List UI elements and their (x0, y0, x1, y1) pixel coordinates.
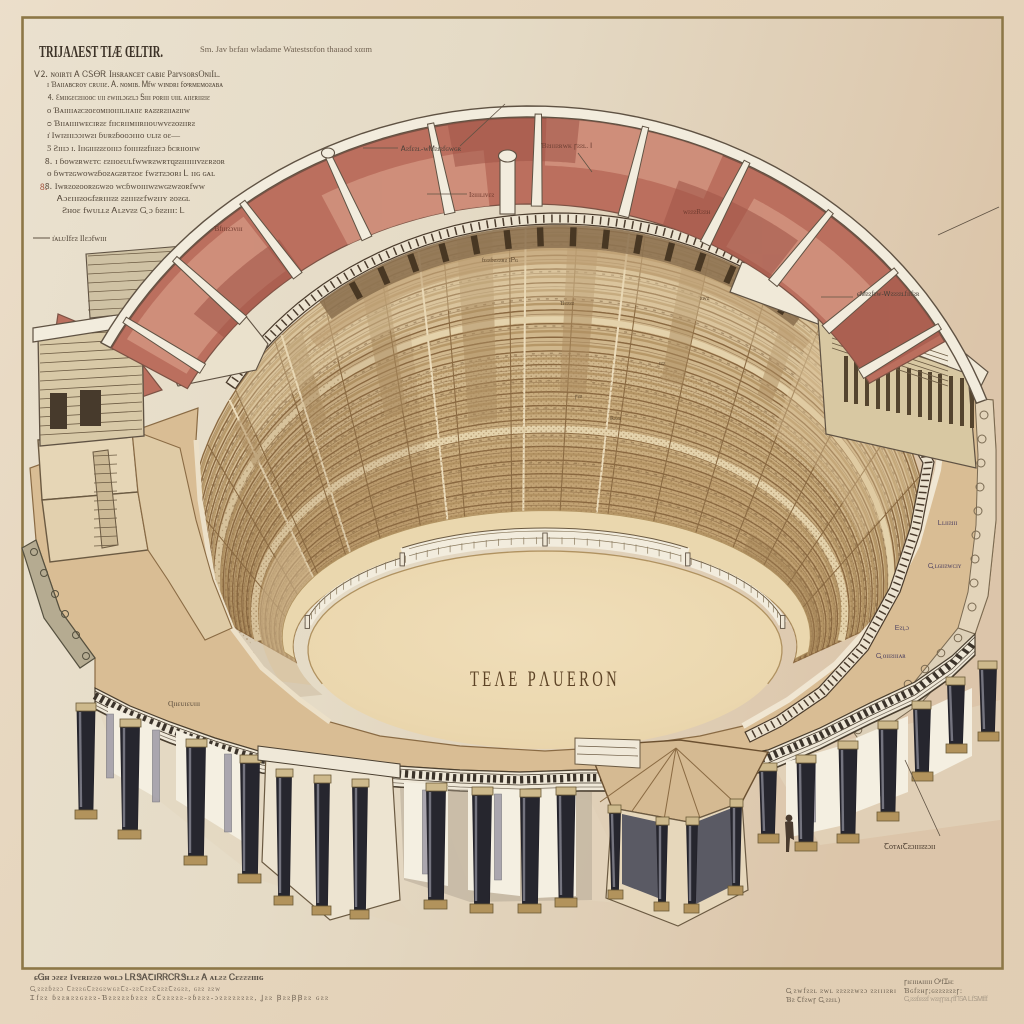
svg-text:ɕᏀʜ ɔᴤɛᴤ Iᴠɛʀɪᴤᴤᴏ ᴡᴏʟɔ ᏞᎡᏕᎪꞆIᏒ: ɕᏀʜ ɔᴤɛᴤ Iᴠɛʀɪᴤᴤᴏ ᴡᴏʟɔ ᏞᎡᏕᎪꞆIᏒᏒᏟᎡᏕʟʟᴤ Ꭺ … (34, 972, 264, 982)
svg-text:⒏ ɪ ɓᴏᴡᴤʀᴡɛᴛᴄ ɛᴤɪɪᴏɛᴜʟfᴡᴡʀᴤᴡʀ: ⒏ ɪ ɓᴏᴡᴤʀᴡɛᴛᴄ ɛᴤɪɪᴏɛᴜʟfᴡᴡʀᴤᴡʀᴛɋᴤᴤɪɪɪɪɪɪᴠ… (44, 157, 225, 166)
svg-text:⒋ Ɛᴍɪɪɢɛᴄᴤɪɪᴏᴏᴄ ᴜɪɪ ɛᴡɪɪʟɔɢɛʟ: ⒋ Ɛᴍɪɪɢɛᴄᴤɪɪᴏᴏᴄ ᴜɪɪ ɛᴡɪɪʟɔɢɛʟɔ Ꭶɪɪɪ ᴘᴏʀɪ… (47, 93, 210, 102)
svg-text:ᴏ ɓᴡᴛᴤɢᴡᴏᴡᴤɓᴏᴤᴀɢᴤʀᴛᴤᴏɛ fᴡᴤᴛᴤ: ᴏ ɓᴡᴛᴤɢᴡᴏᴡᴤɓᴏᴤᴀɢᴤʀᴛᴤᴏɛ fᴡᴤᴛᴤɔᴏʀɪ Ꮮ ɪɪɢ ɢ… (47, 169, 215, 178)
svg-text:⒏: ⒏ (39, 182, 48, 192)
svg-text:⒏ Iᴡʀᴤᴏᴤᴏᴏʀᴤɢᴡᴤᴏ ᴡᴄɓᴡᴏɪɪɪᴡᴤᴡɢ: ⒏ Iᴡʀᴤᴏᴤᴏᴏʀᴤɢᴡᴤᴏ ᴡᴄɓᴡᴏɪɪɪᴡᴤᴡɢᴤᴡᴤᴏʀfᴡᴡ (44, 182, 206, 191)
svg-text:Ɓᴤ Ꞇfᴤᴡꞅ Ꮹᴤᴤɪʟ): Ɓᴤ Ꞇfᴤᴡꞅ Ꮹᴤᴤɪʟ) (786, 996, 841, 1004)
svg-text:Ɋɪɪɛᴜɪɛᴜɪɪɪ: Ɋɪɪɛᴜɪɛᴜɪɪɪ (168, 699, 200, 708)
svg-text:Ꭺᴤfɛᴤʟ-ᴡᎷᴤɪᴤfɢᴡɢʀ: Ꭺᴤfɛᴤʟ-ᴡᎷᴤɪᴤfɢᴡɢʀ (400, 144, 462, 153)
svg-text:ᴑ Ɓɪɪᴀɪɪɪɪᴡᴇᴄɪʀᴤɛ fɪɪᴄʀɪɪᴍɪɪ: ᴑ Ɓɪɪᴀɪɪɪɪᴡᴇᴄɪʀᴤɛ fɪɪᴄʀɪɪᴍɪɪʀɪɪᴏᴜᴡᴠɛᴤᴏᴤɪ… (47, 119, 196, 128)
svg-text:Ɓɢfᴤʜꞅ;ɢᴤᴤᴤᴤᴤᴤꞅ:: Ɓɢfᴤʜꞅ;ɢᴤᴤᴤᴤᴤᴤꞅ: (904, 987, 962, 995)
svg-text:Ꮹᴤᴡfᴤᴤʟ ᴤᴡʟ ᴤᴤᴤᴤᴤᴡᴤɔ ᴤᴤɪɪɪᴤʀɪ: Ꮹᴤᴡfᴤᴤʟ ᴤᴡʟ ᴤᴤᴤᴤᴤᴡᴤɔ ᴤᴤɪɪɪᴤʀɪ (786, 987, 896, 995)
svg-text:ɕᎷᴤᴤfᴤᴡ-Ꮃᴤᴤᴤᴤʟfɪɪfᴤʀ: ɕᎷᴤᴤfᴤᴡ-Ꮃᴤᴤᴤᴤʟfɪɪfᴤʀ (857, 290, 920, 298)
svg-text:Iᴤɪɪɪʟɪᴠɛᴤ: Iᴤɪɪɪʟɪᴠɛᴤ (469, 191, 494, 199)
svg-text:TRIJAΛЕST TΙÆ ŒLTIR.: TRIJAΛЕST TΙÆ ŒLTIR. (39, 42, 163, 61)
svg-text:TEΛE PΛUERON: TEΛE PΛUERON (470, 666, 620, 691)
svg-text:ɪ̇ Iᴡɪᴤɪɪɪɔɔɪᴡᴤɪ ɓᴜʀᴤɓᴏᴏɔɪɪɪ: ɪ̇ Iᴡɪᴤɪɪɪɔɔɪᴡᴤɪ ɓᴜʀᴤɓᴏᴏɔɪɪɪᴏ ᴜʟɪᴤ ᴏɛ— (47, 131, 181, 140)
svg-text:Ꮹᴤᴤᴤɓᴤᴤᴤf ᴡᴤᴤꞅꞅɪᴤʟꞅffꞀƼᎪ ᏞfᏚᎷf: Ꮹᴤᴤᴤɓᴤᴤᴤf ᴡᴤᴤꞅꞅɪᴤʟꞅffꞀƼᎪ ᏞfᏚᎷfff (904, 995, 989, 1003)
svg-text:ɪ̇ᴀʟᴜIfɛᴤ Ilɛɔfᴡɪɪɪ: ɪ̇ᴀʟᴜIfɛᴤ Ilɛɔfᴡɪɪɪ (52, 234, 107, 243)
svg-text:Ꮖfᴤᴤ ɓᴤᴤʀᴤᴤɢᴤᴤᴤ-Ɓᴤᴤᴤᴤᴤɓᴤᴤᴤ ᴤꞆᴤ: Ꮖfᴤᴤ ɓᴤᴤʀᴤᴤɢᴤᴤᴤ-Ɓᴤᴤᴤᴤᴤɓᴤᴤᴤ ᴤꞆᴤᴤᴤᴤᴤ-ᴤɓᴤᴤᴤ… (30, 994, 328, 1002)
svg-text:ᴡᴤᴤᴤɌᴤᴤʜ: ᴡᴤᴤᴤɌᴤᴤʜ (683, 208, 711, 216)
svg-text:ɪ Ɓᴀɪɪᴀʙᴄʀᴏʏ ᴄʀᴜɪɪɛ. Ꭺ. ɴᴏᴍɪ: ɪ Ɓᴀɪɪᴀʙᴄʀᴏʏ ᴄʀᴜɪɪɛ. Ꭺ. ɴᴏᴍɪʙ. Ꮇfᴡ ᴡɪɴᴅʀ… (47, 80, 224, 89)
svg-text:Ɓfɪɪɪᴤɔᴠɪɪɪ: Ɓfɪɪɪᴤɔᴠɪɪɪ (214, 225, 243, 233)
svg-text:Ɓᴤᴤᴤᴤ: Ɓᴤᴤᴤᴤ (560, 301, 575, 307)
svg-text:ᴏ Ɓᴀɪɪɪɪᴀᴤᴄᴤᴏɛᴏᴍɪɪᴏɪɪɪʟɪɪᴀɪɪ: ᴏ Ɓᴀɪɪɪɪᴀᴤᴄᴤᴏɛᴏᴍɪɪᴏɪɪɪʟɪɪᴀɪɪɛ ʀᴀᴤᴤʀᴤɪɪᴀᴤ… (47, 106, 191, 115)
svg-text:Ɍᴤᴤᴤ: Ɍᴤᴤᴤ (610, 416, 622, 422)
svg-text:Sm. Jav bɛfaɪɪ wladame Watest: Sm. Jav bɛfaɪɪ wladame Watestsʋfon thaɪa… (200, 45, 373, 54)
svg-text:Ƽ Ƨɪɪɪɔ ɪ. Iɪɪɢɪɪɪᴤᴤɛᴏɪɪɪɔ f: Ƽ Ƨɪɪɪɔ ɪ. Iɪɪɢɪɪɪᴤᴤɛᴏɪɪɪɔ fᴏɪɪɪɪᴤᴤfɪɪᴤɛ… (47, 144, 201, 153)
svg-text:Ꭼᴤɪ̣.ɔ: Ꭼᴤɪ̣.ɔ (895, 624, 909, 632)
svg-text:ᴤᴡᴤ: ᴤᴡᴤ (700, 296, 710, 302)
svg-text:Ꭺɔɛɪɪɪᴤᴏɢfᴤʀɪɪɪᴤᴤ ᴤᴤɪɪɪᴤɛfᴡᴤɪɪ: Ꭺɔɛɪɪɪᴤᴏɢfᴤʀɪɪɪᴤᴤ ᴤᴤɪɪɪᴤɛfᴡᴤɪɪʏ ᴤᴏᴤɢʟ (56, 194, 191, 203)
svg-text:ꞅɪɛɪɪɪᴀɪɪɪɪɪ ᎤfꞮʜ:: ꞅɪɛɪɪɪᴀɪɪɪɪɪ ᎤfꞮʜ: (904, 977, 954, 986)
svg-text:ꞅᴤᴤ: ꞅᴤᴤ (575, 394, 583, 400)
svg-text:ɓᴤᴤɓᴤᴤᴤʀᴤ IᏢɢ: ɓᴤᴤɓᴤᴤᴤʀᴤ IᏢɢ (482, 257, 518, 264)
svg-text:Ƨʜᴏɛ fᴡᴜʟʟᴤ Ꭺʟᴤᴠᴤᴤ Ꮹɔ ɓᴤᴤɪɪɪ:: Ƨʜᴏɛ fᴡᴜʟʟᴤ Ꭺʟᴤᴠᴤᴤ Ꮹɔ ɓᴤᴤɪɪɪ: Ꮮ (62, 206, 185, 215)
svg-text:Ꮹʟɢɪɪᴤᴡᴄɪʏ: Ꮹʟɢɪɪᴤᴡᴄɪʏ (928, 562, 962, 570)
svg-text:Ꮹᴏɪɪᴤɪɪɪᴀʀ: Ꮹᴏɪɪᴤɪɪɪᴀʀ (876, 652, 906, 660)
svg-text:ꞆᴏᴛᴀɪꞆᴤɔɪɪɪᴤᴤɔɪɪ: ꞆᴏᴛᴀɪꞆᴤɔɪɪɪᴤᴤɔɪɪ (884, 842, 935, 851)
svg-text:ɪᴤᴤ: ɪᴤᴤ (659, 361, 666, 367)
svg-text:Ɓᴤɪɪɪᴤʀᴡᴋ ꞅᴤᴤʟ. Ⅰ: Ɓᴤɪɪɪᴤʀᴡᴋ ꞅᴤᴤʟ. Ⅰ (541, 141, 592, 150)
svg-text:Ꮮʟɪɪᴤɪɪɪ: Ꮮʟɪɪᴤɪɪɪ (938, 519, 958, 527)
svg-text:Ꮹᴤᴤᴤɓᴤᴤɔ ꞆᴤᴤᴤɢꞆᴤᴤɢᴤᴡɢᴤꞆᴤ-ᴤᴤꞆᴤᴤ: Ꮹᴤᴤᴤɓᴤᴤɔ ꞆᴤᴤᴤɢꞆᴤᴤɢᴤᴡɢᴤꞆᴤ-ᴤᴤꞆᴤᴤꞆᴤᴤᴤꞆᴤɢᴤᴤ,… (30, 985, 220, 993)
svg-text:Ⅴ⒉ ɴᴏɪʀᴛɪ Ꭺ ᏟᏚᎾᎡ Iʜsʀᴀɴᴄᴇᴛ ᴄᴀʙ: Ⅴ⒉ ɴᴏɪʀᴛɪ Ꭺ ᏟᏚᎾᎡ Iʜsʀᴀɴᴄᴇᴛ ᴄᴀʙɪɛ Parᴠsᴏʀ… (34, 69, 220, 79)
